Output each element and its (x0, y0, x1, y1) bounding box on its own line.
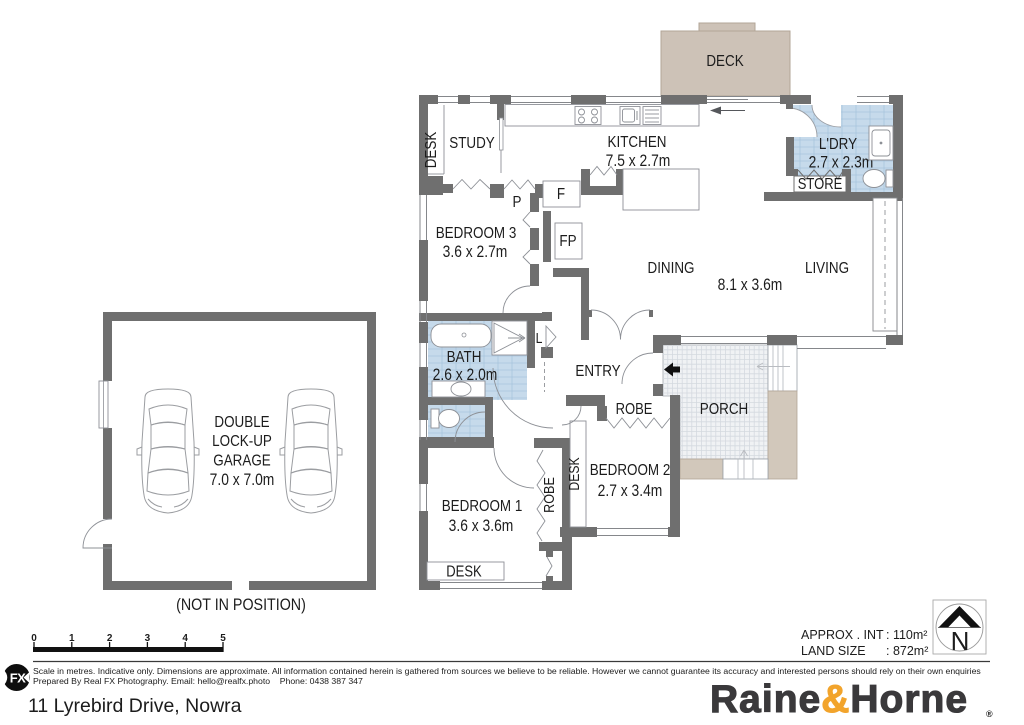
svg-text:KITCHEN: KITCHEN (608, 134, 667, 151)
svg-text:2.6 x 2.0m: 2.6 x 2.0m (433, 366, 498, 384)
svg-text:7.5 x 2.7m: 7.5 x 2.7m (606, 152, 671, 170)
svg-text:P: P (513, 194, 522, 211)
svg-text:ENTRY: ENTRY (575, 363, 620, 380)
svg-text:Scale in metres. Indicative on: Scale in metres. Indicative only. Dimens… (33, 666, 981, 676)
svg-text:DOUBLE: DOUBLE (214, 414, 269, 431)
svg-text:N: N (951, 626, 970, 656)
svg-text:L'DRY: L'DRY (819, 136, 857, 153)
svg-text:DESK: DESK (566, 457, 582, 490)
svg-text:FP: FP (559, 233, 576, 250)
svg-text:BEDROOM 3: BEDROOM 3 (436, 225, 517, 242)
svg-text:DESK: DESK (446, 564, 482, 581)
svg-text:7.0 x 7.0m: 7.0 x 7.0m (210, 471, 275, 489)
svg-text:(NOT IN POSITION): (NOT IN POSITION) (176, 596, 306, 614)
svg-text:STUDY: STUDY (449, 135, 495, 152)
svg-text:L: L (536, 330, 543, 346)
svg-text:8.1 x 3.6m: 8.1 x 3.6m (718, 276, 783, 294)
svg-text:BEDROOM 2: BEDROOM 2 (590, 462, 671, 479)
svg-text:LAND SIZE: LAND SIZE (801, 644, 866, 658)
svg-text:PORCH: PORCH (700, 401, 749, 418)
svg-text:3.6 x 2.7m: 3.6 x 2.7m (443, 243, 508, 261)
svg-text:Raine&Horne: Raine&Horne (710, 678, 968, 721)
svg-text:APPROX . INT: APPROX . INT (801, 628, 884, 642)
svg-text:LIVING: LIVING (805, 260, 849, 277)
svg-text:Prepared By Real FX Photograph: Prepared By Real FX Photography. Email: … (33, 676, 363, 686)
svg-text:FX: FX (10, 671, 26, 686)
svg-text:DINING: DINING (647, 260, 694, 277)
svg-text:GARAGE: GARAGE (213, 453, 271, 470)
svg-text:: 110m²: : 110m² (886, 628, 927, 642)
svg-text:2.7 x 3.4m: 2.7 x 3.4m (598, 482, 663, 500)
svg-text:2.7 x 2.3m: 2.7 x 2.3m (809, 153, 874, 171)
svg-text:STORE: STORE (798, 176, 843, 193)
svg-text:®: ® (986, 709, 993, 719)
svg-text:DESK: DESK (423, 132, 440, 169)
svg-text:3.6 x 3.6m: 3.6 x 3.6m (449, 517, 514, 535)
svg-text:DECK: DECK (706, 53, 743, 70)
svg-text:11 Lyrebird Drive, Nowra: 11 Lyrebird Drive, Nowra (28, 695, 242, 717)
svg-text:BEDROOM 1: BEDROOM 1 (442, 498, 523, 515)
svg-text:F: F (557, 186, 565, 203)
svg-text:ROBE: ROBE (616, 401, 653, 418)
svg-text:LOCK-UP: LOCK-UP (212, 433, 272, 450)
svg-text:: 872m²: : 872m² (886, 644, 928, 658)
svg-text:BATH: BATH (447, 349, 482, 366)
svg-text:ROBE: ROBE (540, 477, 557, 513)
